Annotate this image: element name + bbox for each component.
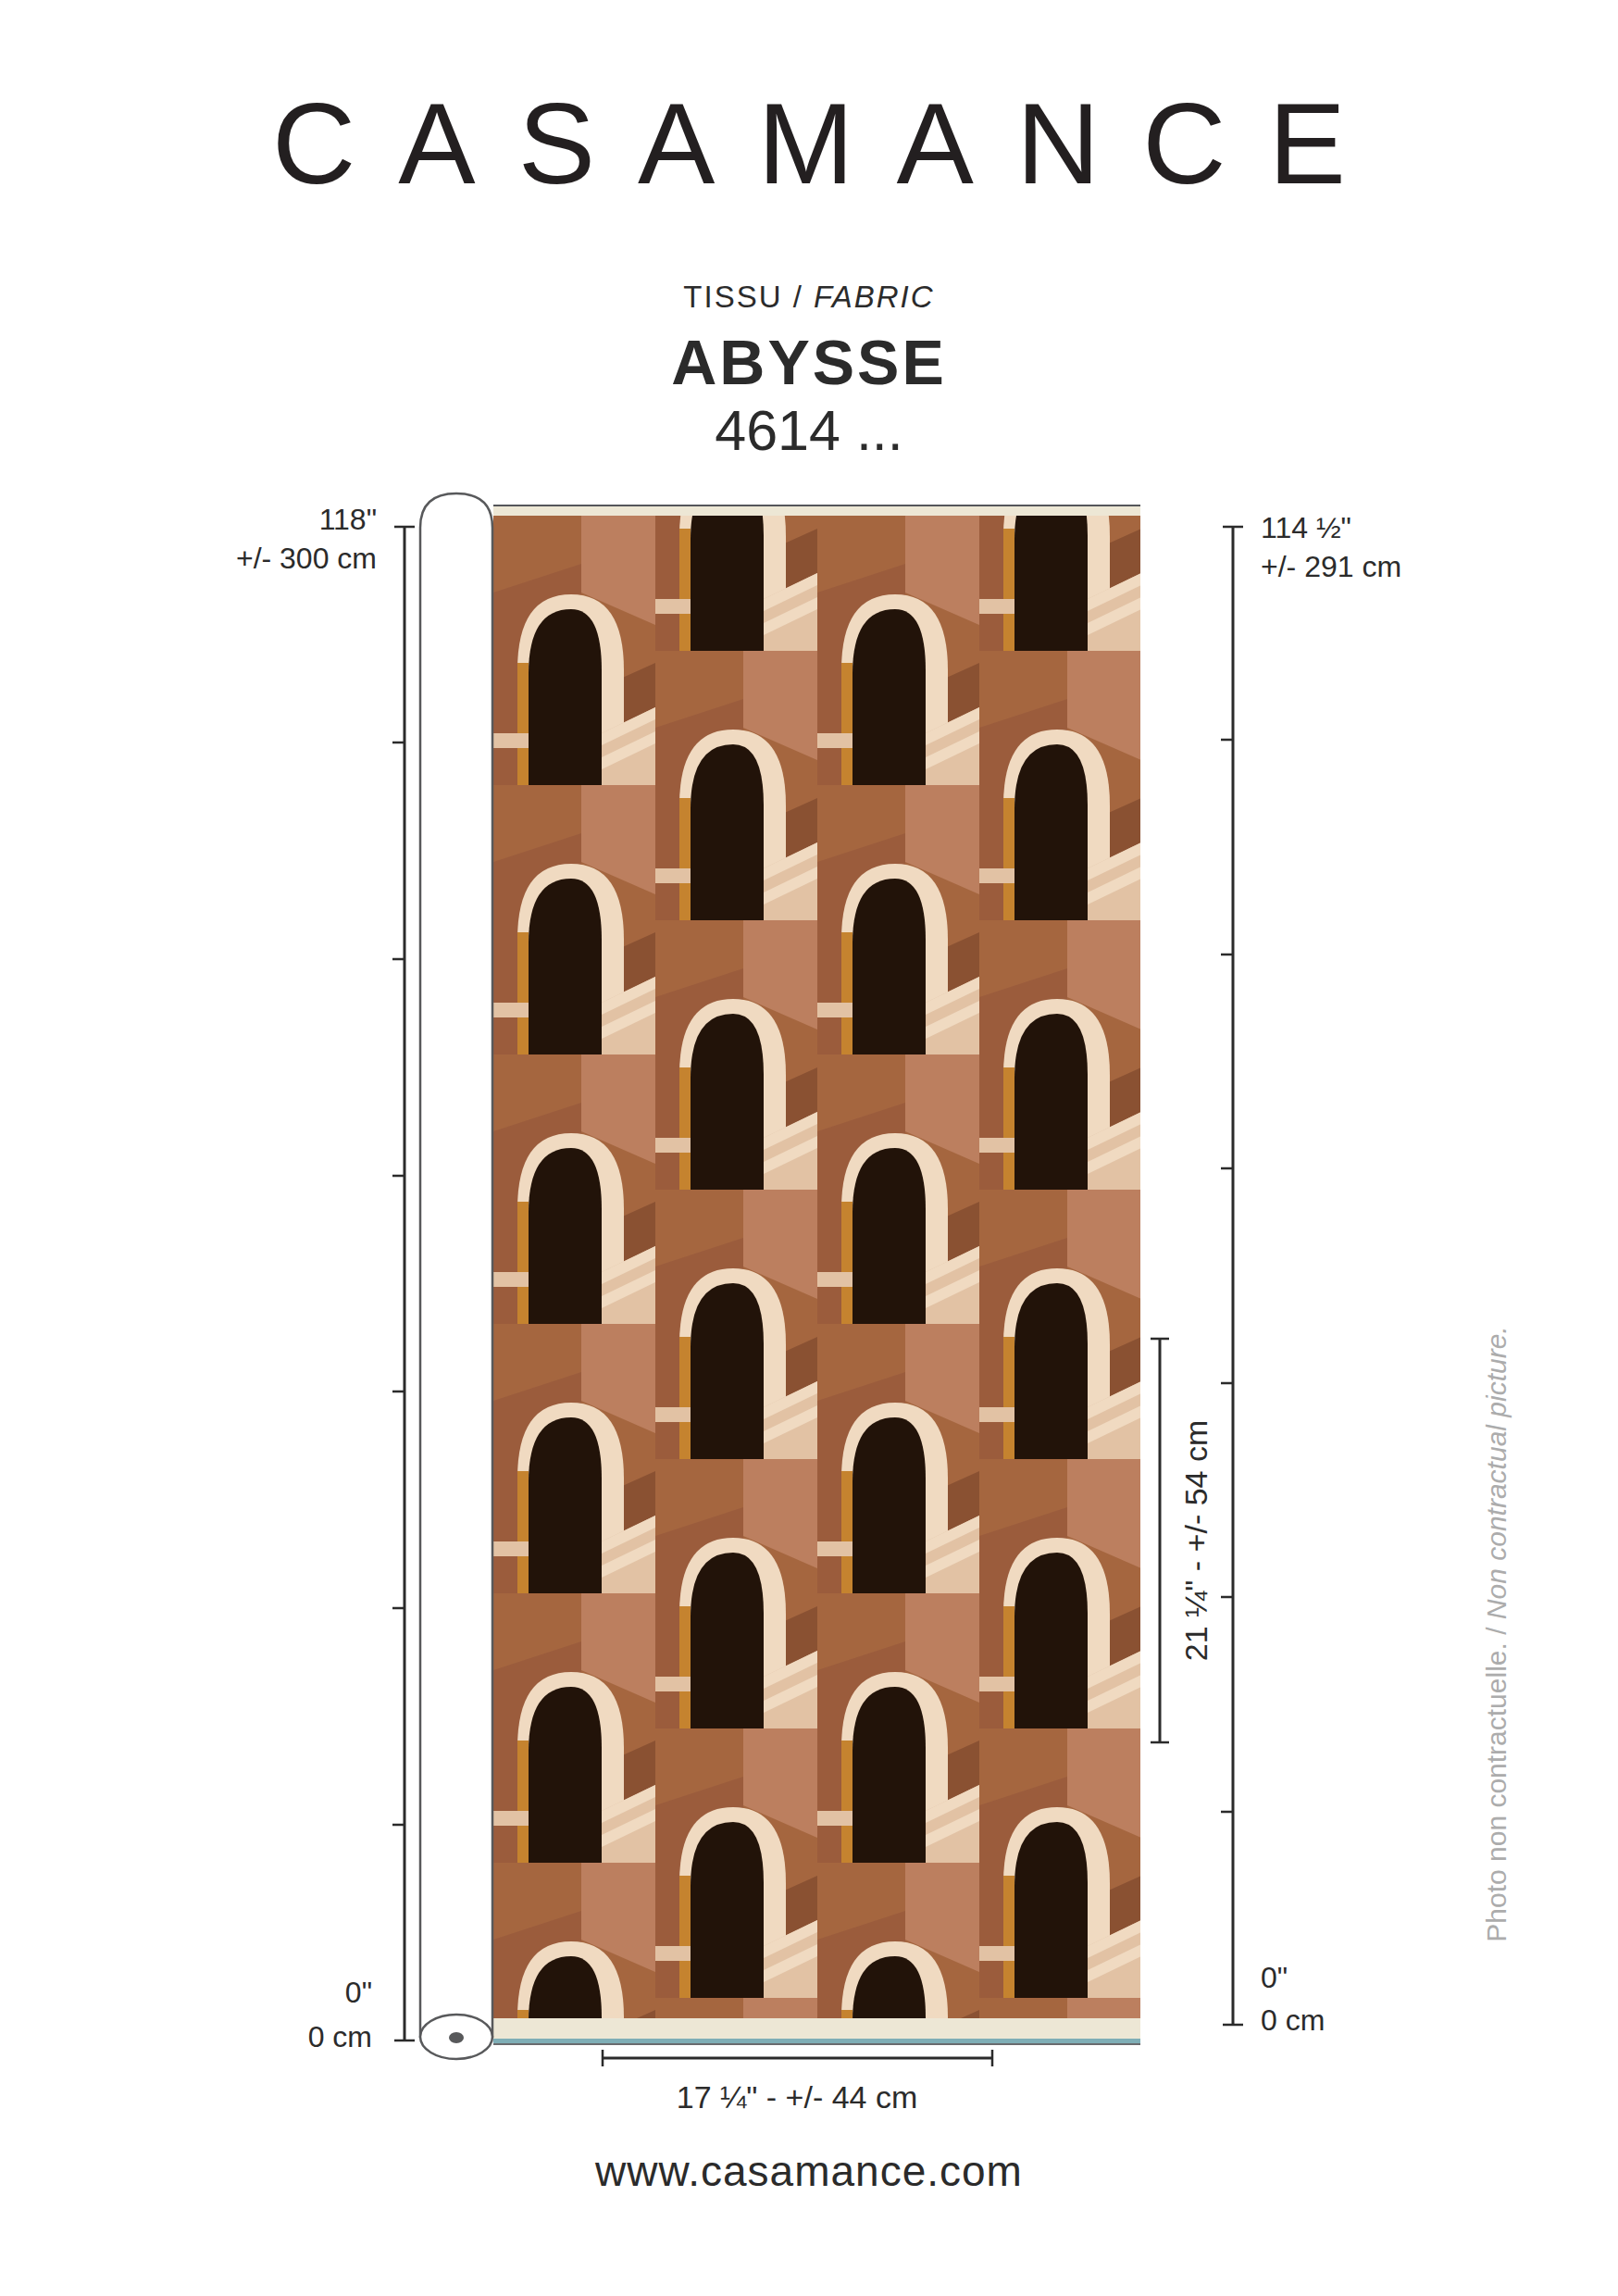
left-measure-line: [392, 526, 415, 2041]
brand-logo: CASAMANCE: [0, 77, 1618, 209]
horizontal-repeat-label: 17 ¼" - +/- 44 cm: [519, 2079, 1075, 2115]
category-line: TISSU / FABRIC: [0, 280, 1618, 315]
disclaimer-en: Non contractual picture.: [1481, 1326, 1512, 1619]
selvage-bottom-line: [493, 2039, 1140, 2043]
selvage-bottom: [493, 2018, 1140, 2039]
left-top-cm: +/- 300 cm: [236, 539, 377, 578]
right-top-cm: +/- 291 cm: [1261, 547, 1401, 586]
category-divider: /: [783, 280, 815, 314]
website-url: www.casamance.com: [0, 2146, 1618, 2196]
fabric-pattern-area: [493, 516, 1140, 2018]
spec-sheet-page: CASAMANCE TISSU / FABRIC ABYSSE 4614 ...…: [0, 0, 1618, 2296]
left-top-inches: 118": [236, 500, 377, 539]
disclaimer-text: Photo non contractuelle. / Non contractu…: [1480, 1217, 1513, 2051]
vertical-repeat-line: [1151, 1338, 1169, 1743]
fabric-panel: [493, 505, 1140, 2045]
right-top-measurement: 114 ½" +/- 291 cm: [1261, 508, 1401, 586]
disclaimer-fr: Photo non contractuelle.: [1481, 1642, 1512, 1942]
right-top-inches: 114 ½": [1261, 508, 1401, 547]
roll-core-dot: [449, 2032, 464, 2043]
category-fr: TISSU: [683, 280, 782, 314]
right-bottom-inches: 0": [1261, 1956, 1325, 1999]
right-bottom-cm: 0 cm: [1261, 1999, 1325, 2041]
category-en: FABRIC: [814, 280, 935, 314]
left-bottom-measurement: 0" 0 cm: [308, 1970, 372, 2059]
disclaimer-divider: /: [1481, 1619, 1512, 1642]
roll-tube-icon: [420, 493, 492, 2059]
left-top-measurement: 118" +/- 300 cm: [236, 500, 377, 578]
product-name: ABYSSE: [0, 326, 1618, 398]
vertical-repeat-label: 21 ¼" - +/- 54 cm: [1177, 1263, 1214, 1818]
selvage-top: [493, 506, 1140, 516]
horizontal-repeat-line: [602, 2050, 993, 2066]
product-code: 4614 ...: [0, 398, 1618, 463]
left-bottom-cm: 0 cm: [308, 2015, 372, 2059]
left-bottom-inches: 0": [308, 1970, 372, 2015]
right-measure-line: [1221, 526, 1243, 2026]
right-bottom-measurement: 0" 0 cm: [1261, 1956, 1325, 2041]
